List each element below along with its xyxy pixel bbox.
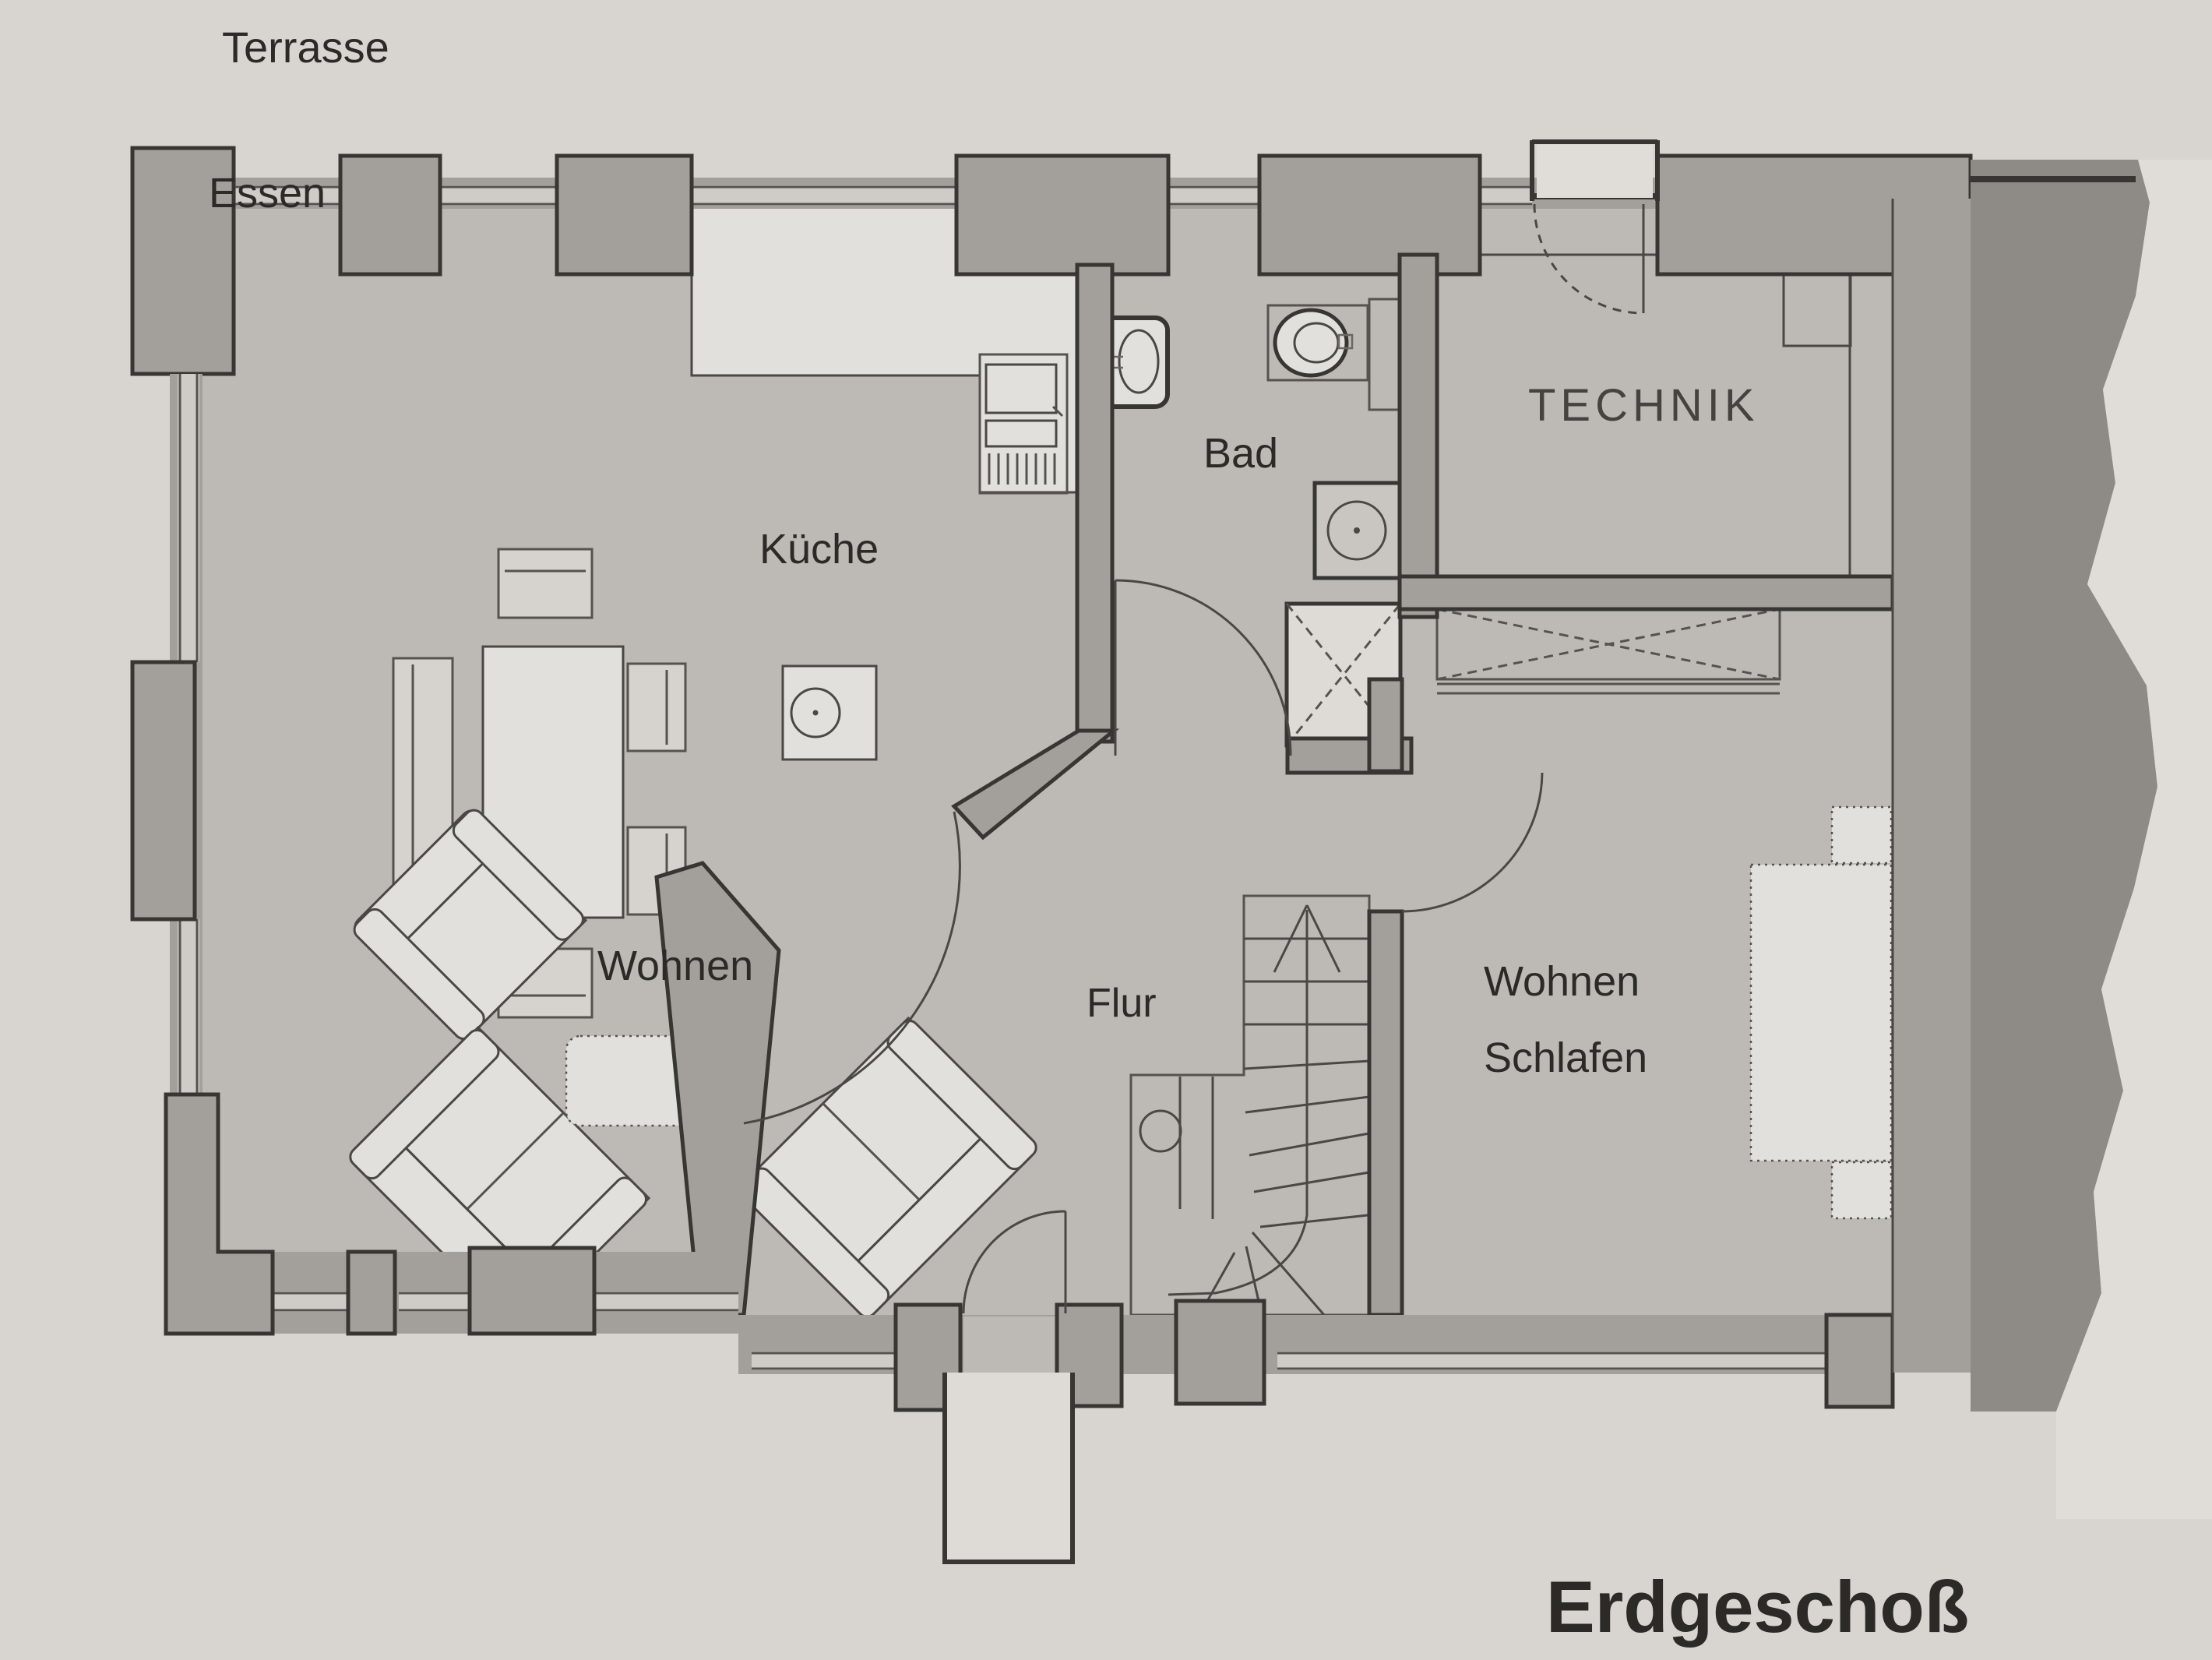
room-label-wohnen-schlafen-2: Schlafen xyxy=(1484,1034,1647,1081)
sink-bowl-small xyxy=(986,421,1056,446)
pillar-bottom-2 xyxy=(348,1252,395,1334)
entrance-porch-bottom xyxy=(945,1373,1073,1562)
dining-chair-top xyxy=(498,549,592,618)
room-label-essen: Essen xyxy=(209,170,326,217)
pillar-bottom-3 xyxy=(470,1248,594,1334)
room-label-terrasse: Terrasse xyxy=(222,23,389,72)
room-label-technik: TECHNIK xyxy=(1528,380,1759,431)
window-bottom-3 xyxy=(596,1292,738,1312)
bed-group xyxy=(1751,807,1891,1218)
nightstand-top xyxy=(1832,807,1891,863)
pillar-top-5 xyxy=(1259,156,1480,274)
pillar-top-3 xyxy=(557,156,692,274)
floorplan-drawing: Terrasse Essen Küche Bad TECHNIK Wohnen … xyxy=(0,0,2212,1660)
room-label-flur: Flur xyxy=(1087,981,1157,1026)
wall-bad-technik xyxy=(1400,255,1437,617)
pillar-bottom-6 xyxy=(1176,1301,1264,1404)
window-bottom-5 xyxy=(1277,1352,1826,1370)
wall-right-band xyxy=(1893,199,1971,1373)
wall-stairs-bedroom xyxy=(1369,911,1402,1315)
wall-technik-bedroom xyxy=(1400,576,1893,609)
pillar-top-2 xyxy=(340,156,440,274)
wall-kitchen-bad xyxy=(1077,265,1112,742)
plan-title-erdgeschoss: Erdgeschoß xyxy=(1546,1566,1969,1648)
window-top-technik xyxy=(1480,185,1532,206)
bed xyxy=(1751,865,1891,1161)
toilet-bowl-icon xyxy=(1275,310,1347,375)
wall-bedroom-upper xyxy=(1369,679,1402,771)
room-label-bad: Bad xyxy=(1203,430,1278,477)
stove-knob-dot xyxy=(813,710,819,716)
kitchen-island-stove xyxy=(783,666,876,760)
window-bottom-2 xyxy=(399,1292,470,1312)
scanned-floorplan-page: Terrasse Essen Küche Bad TECHNIK Wohnen … xyxy=(0,0,2212,1660)
pillar-bottom-right-corner xyxy=(1826,1315,1893,1407)
window-top-kitchen xyxy=(692,185,956,206)
window-bottom-4 xyxy=(752,1352,896,1370)
room-label-kueche: Küche xyxy=(759,526,879,573)
pillar-top-4 xyxy=(956,156,1168,274)
washing-machine xyxy=(1315,483,1400,578)
room-label-wohnen: Wohnen xyxy=(597,943,753,989)
window-top-bad xyxy=(1168,185,1259,206)
sink-bowl-large xyxy=(986,365,1056,413)
entrance-porch-top xyxy=(1537,145,1653,198)
entrance-door-opening xyxy=(963,1316,1059,1373)
nightstand-bottom xyxy=(1832,1162,1891,1218)
pillar-left-middle xyxy=(132,662,195,919)
room-label-wohnen-schlafen-1: Wohnen xyxy=(1484,958,1640,1005)
window-top-2 xyxy=(440,185,557,206)
dining-chair-right-1 xyxy=(628,664,685,751)
window-bottom-1 xyxy=(273,1292,348,1312)
